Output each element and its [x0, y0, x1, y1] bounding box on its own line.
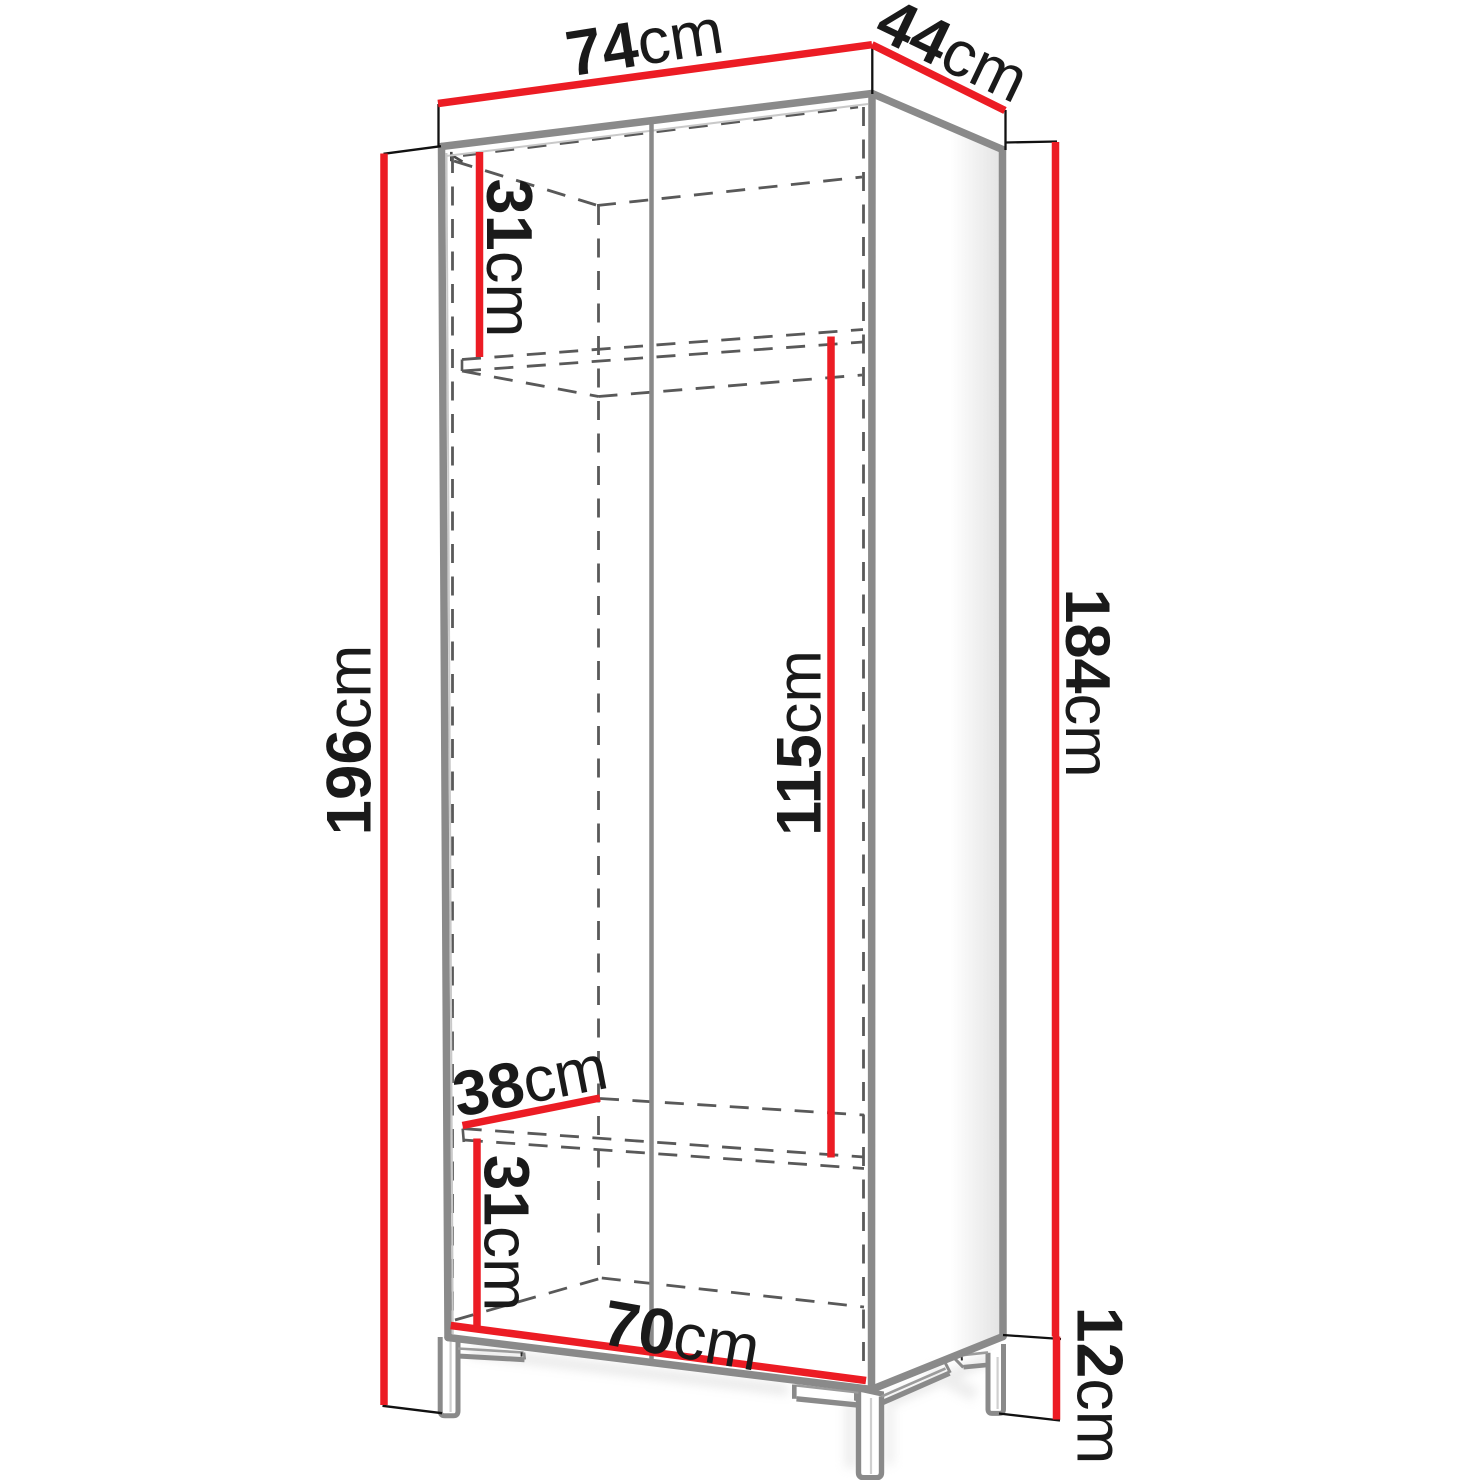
svg-text:31cm: 31cm: [471, 1155, 543, 1312]
svg-text:115cm: 115cm: [765, 650, 835, 836]
svg-text:12cm: 12cm: [1064, 1307, 1136, 1465]
svg-text:184cm: 184cm: [1052, 588, 1122, 777]
svg-text:196cm: 196cm: [315, 645, 385, 836]
svg-text:31cm: 31cm: [473, 179, 546, 338]
